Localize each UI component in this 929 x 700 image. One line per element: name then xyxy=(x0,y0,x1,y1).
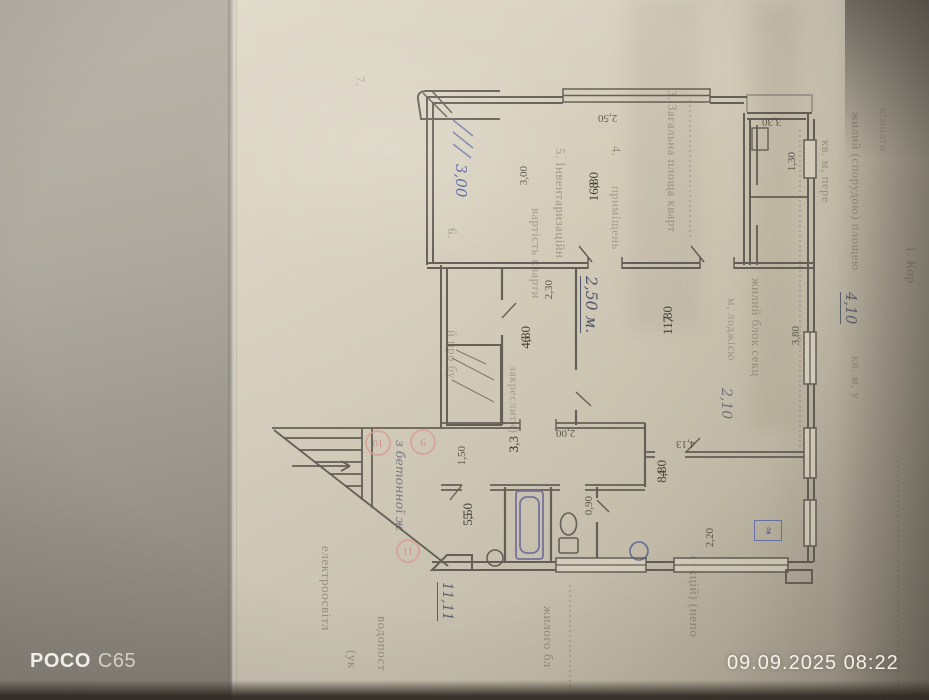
blue-stamp: 4б4ж xyxy=(754,520,782,541)
dimension-label: 2,00 xyxy=(556,427,575,439)
dimension-label: 2,50 xyxy=(598,112,617,124)
room-area: 4,80 xyxy=(518,326,534,349)
red-circle-digit: 10 xyxy=(373,437,384,449)
photo-canvas: 1. Коркімнатижилий (спорудою) площеюкв. … xyxy=(0,0,929,700)
dimension-label: 3,80 xyxy=(790,326,802,345)
red-circle-digit: 9 xyxy=(420,436,426,448)
dimension-label: 3,00 xyxy=(518,166,530,185)
dimension-label: 2,30 xyxy=(543,280,555,299)
dimension-label: 1,50 xyxy=(456,446,468,465)
photo-shadow-bottom xyxy=(0,680,929,700)
dimension-label: 2,20 xyxy=(704,528,716,547)
room-area: 16,80 xyxy=(586,172,602,201)
room-area: 5,50 xyxy=(460,503,476,526)
room-area: 3,3 xyxy=(506,436,522,452)
dimension-label: 1,30 xyxy=(786,152,798,171)
plan-annotation-layer: 816,80711,8064,8033,355,5048,802,503,301… xyxy=(0,0,929,700)
room-area: 11,80 xyxy=(660,306,676,335)
dimension-label: 3,30 xyxy=(762,116,781,128)
blue-stamp-text: 4ж xyxy=(764,527,771,535)
room-area: 8,80 xyxy=(654,460,670,483)
photo-shadow-top-right xyxy=(845,0,929,160)
dimension-label: 4,13 xyxy=(676,438,695,450)
dimension-label: 0,90 xyxy=(583,496,595,515)
red-circle-digit: 11 xyxy=(403,545,414,557)
